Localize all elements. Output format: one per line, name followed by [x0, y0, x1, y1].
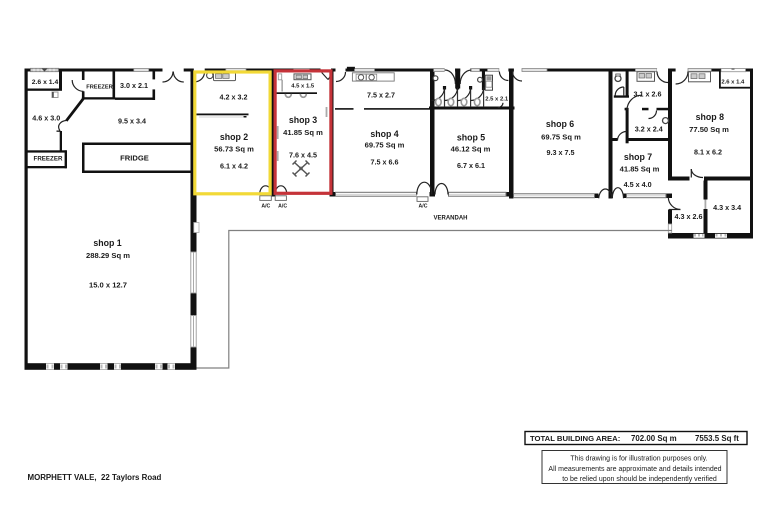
svg-text:4.2 x 3.2: 4.2 x 3.2	[220, 93, 248, 102]
svg-text:shop 7: shop 7	[624, 152, 652, 162]
svg-text:shop 3: shop 3	[289, 115, 317, 125]
svg-text:3.2 x 2.4: 3.2 x 2.4	[635, 125, 663, 134]
svg-text:69.75 Sq m: 69.75 Sq m	[365, 141, 405, 150]
svg-text:9.5 x 3.4: 9.5 x 3.4	[118, 117, 146, 126]
svg-text:4.5 x 4.0: 4.5 x 4.0	[624, 180, 652, 189]
svg-text:2.6 x 1.4: 2.6 x 1.4	[32, 79, 59, 86]
svg-text:A/C: A/C	[278, 203, 287, 209]
svg-text:288.29 Sq m: 288.29 Sq m	[86, 251, 130, 260]
svg-text:7553.5 Sq ft: 7553.5 Sq ft	[695, 434, 739, 443]
svg-text:TOTAL BUILDING AREA:: TOTAL BUILDING AREA:	[530, 434, 620, 443]
svg-text:41.85 Sq m: 41.85 Sq m	[620, 164, 660, 173]
svg-text:3.0 x 2.1: 3.0 x 2.1	[120, 81, 148, 90]
svg-text:9.3 x 7.5: 9.3 x 7.5	[547, 148, 575, 157]
svg-text:FREEZER: FREEZER	[34, 155, 63, 162]
svg-text:4.6 x 3.0: 4.6 x 3.0	[32, 113, 60, 122]
svg-text:77.50 Sq m: 77.50 Sq m	[689, 125, 729, 134]
svg-text:4.5 x 1.5: 4.5 x 1.5	[291, 83, 315, 89]
svg-text:46.12 Sq m: 46.12 Sq m	[451, 144, 491, 153]
svg-text:4.3 x 2.6: 4.3 x 2.6	[675, 212, 703, 221]
svg-text:FREEZER: FREEZER	[86, 84, 113, 90]
svg-text:to be relied upon should be in: to be relied upon should be independentl…	[562, 476, 717, 483]
svg-text:shop 1: shop 1	[93, 238, 121, 248]
svg-text:This drawing is for illustrati: This drawing is for illustration purpose…	[570, 456, 707, 463]
svg-text:69.75 Sq m: 69.75 Sq m	[541, 133, 581, 142]
svg-text:702.00 Sq m: 702.00 Sq m	[631, 434, 677, 443]
svg-text:6.7 x 6.1: 6.7 x 6.1	[457, 161, 485, 170]
svg-text:shop 5: shop 5	[457, 132, 485, 142]
svg-text:VERANDAH: VERANDAH	[433, 216, 467, 222]
svg-text:MORPHETT VALE, 22 Taylors Roa: MORPHETT VALE, 22 Taylors Road	[28, 473, 162, 482]
svg-text:7.5 x 2.7: 7.5 x 2.7	[367, 90, 395, 99]
svg-text:7.6 x 4.5: 7.6 x 4.5	[289, 151, 317, 160]
svg-text:56.73 Sq m: 56.73 Sq m	[214, 145, 254, 154]
svg-text:2.5 x 2.1: 2.5 x 2.1	[485, 97, 509, 103]
svg-text:2.6 x 1.4: 2.6 x 1.4	[721, 79, 745, 85]
svg-text:shop 4: shop 4	[370, 129, 398, 139]
svg-text:3.1 x 2.6: 3.1 x 2.6	[634, 90, 662, 99]
svg-text:8.1 x 6.2: 8.1 x 6.2	[694, 148, 722, 157]
svg-text:6.1 x 4.2: 6.1 x 4.2	[220, 162, 248, 171]
svg-text:shop 8: shop 8	[696, 112, 724, 122]
svg-text:A/C: A/C	[261, 203, 270, 209]
svg-text:4.3 x 3.4: 4.3 x 3.4	[713, 203, 741, 212]
svg-text:15.0 x 12.7: 15.0 x 12.7	[89, 280, 127, 289]
svg-text:41.85 Sq m: 41.85 Sq m	[283, 128, 323, 137]
svg-text:shop 2: shop 2	[220, 132, 248, 142]
svg-text:FRIDGE: FRIDGE	[120, 153, 149, 162]
svg-text:All measurements are approxima: All measurements are approximate and det…	[548, 466, 721, 473]
svg-text:7.5 x 6.6: 7.5 x 6.6	[371, 157, 399, 166]
svg-text:A/C: A/C	[419, 203, 428, 209]
svg-text:shop 6: shop 6	[546, 119, 574, 129]
